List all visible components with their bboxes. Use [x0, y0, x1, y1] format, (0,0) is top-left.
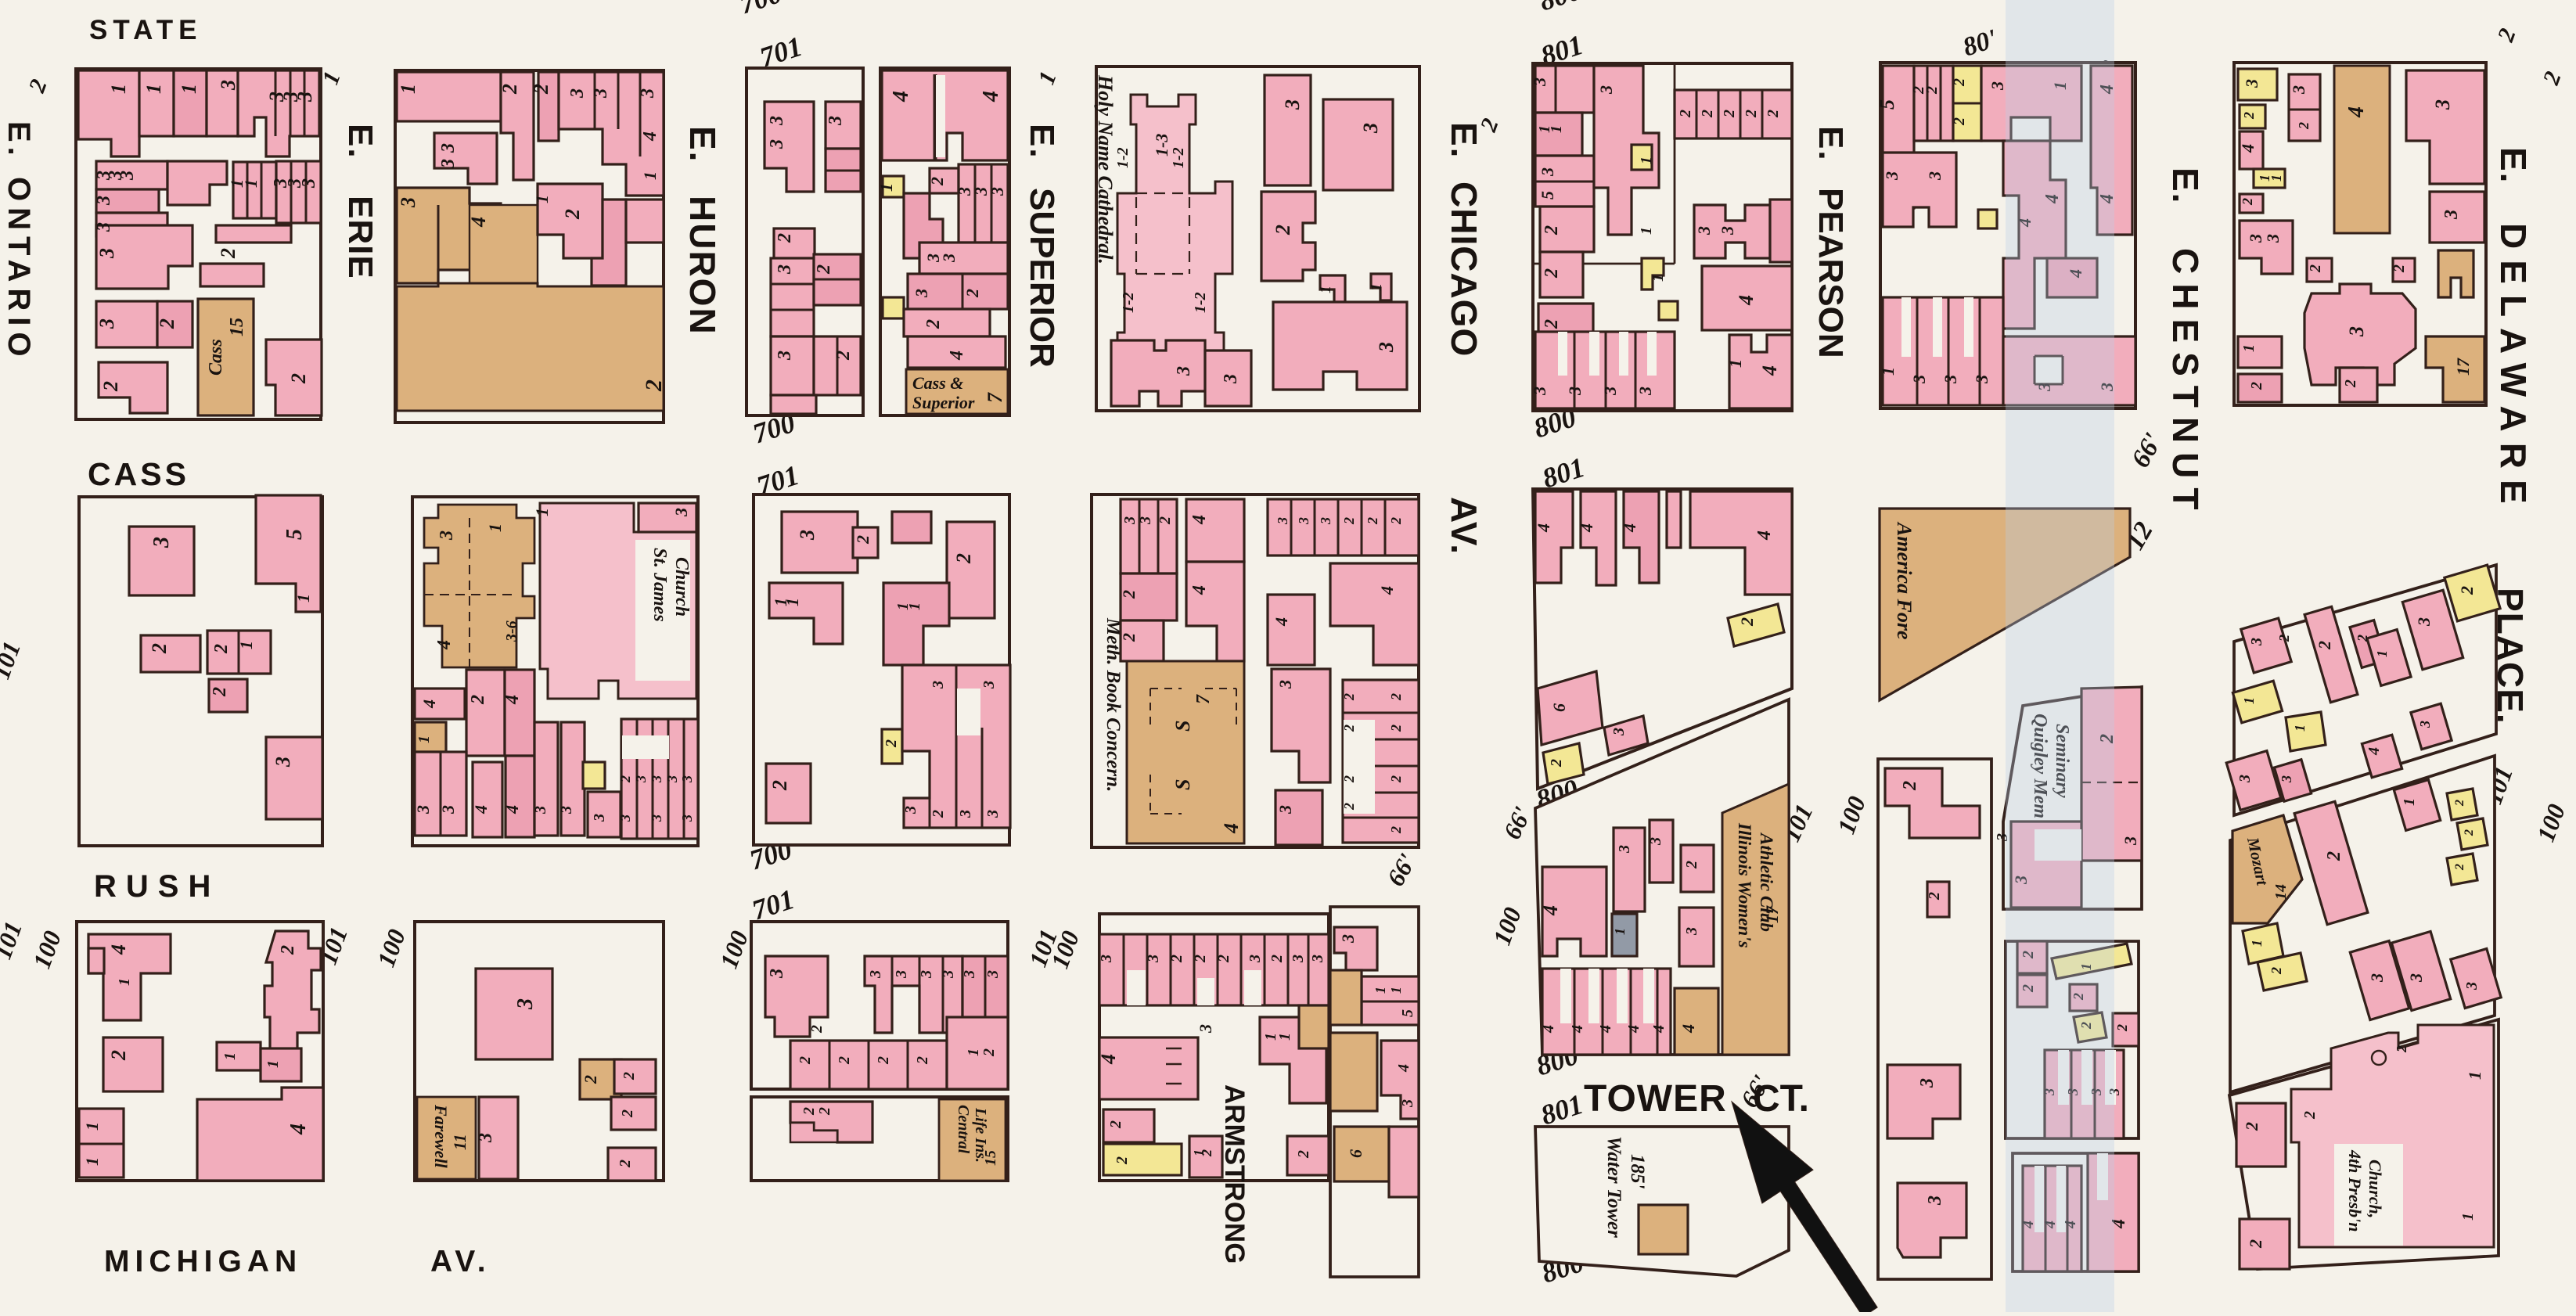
- svg-text:3: 3: [1538, 167, 1557, 177]
- svg-text:4: 4: [1220, 823, 1243, 834]
- svg-text:3: 3: [649, 775, 664, 783]
- svg-text:4: 4: [1758, 365, 1781, 376]
- svg-text:3: 3: [2463, 982, 2481, 991]
- svg-text:2: 2: [1388, 517, 1404, 525]
- svg-text:St. James: St. James: [649, 548, 670, 622]
- svg-text:3: 3: [2242, 79, 2261, 88]
- svg-text:Superior: Superior: [912, 393, 975, 412]
- svg-text:3: 3: [1359, 123, 1382, 134]
- svg-text:ONTARIO: ONTARIO: [2, 177, 36, 362]
- svg-text:2: 2: [775, 233, 795, 243]
- svg-text:2: 2: [1388, 725, 1404, 732]
- svg-text:3: 3: [1972, 375, 1991, 384]
- svg-text:2: 2: [1365, 517, 1380, 525]
- svg-text:2: 2: [2391, 264, 2408, 273]
- svg-text:2: 2: [99, 381, 122, 392]
- svg-text:4: 4: [1650, 1025, 1668, 1034]
- svg-text:5: 5: [1876, 99, 1898, 110]
- svg-text:2: 2: [2240, 198, 2255, 206]
- svg-text:4: 4: [1377, 586, 1397, 595]
- svg-text:1: 1: [1317, 286, 1334, 293]
- svg-text:1: 1: [221, 1052, 239, 1060]
- svg-text:4: 4: [1540, 1025, 1557, 1034]
- svg-text:2: 2: [2246, 1239, 2265, 1249]
- svg-text:4: 4: [889, 91, 913, 102]
- svg-text:5: 5: [282, 529, 307, 540]
- svg-text:1: 1: [532, 508, 552, 516]
- svg-text:7: 7: [984, 392, 1006, 403]
- svg-text:1: 1: [1276, 1033, 1293, 1041]
- svg-text:2: 2: [621, 1072, 638, 1080]
- svg-text:SUPERIOR: SUPERIOR: [1023, 188, 1061, 368]
- svg-text:3: 3: [767, 139, 787, 149]
- svg-text:3: 3: [1296, 517, 1311, 525]
- svg-text:2: 2: [2301, 1111, 2319, 1120]
- svg-text:3: 3: [1196, 1024, 1215, 1034]
- svg-text:3: 3: [930, 681, 947, 689]
- svg-text:1-3: 1-3: [1152, 134, 1171, 156]
- svg-text:3: 3: [912, 289, 931, 298]
- svg-text:3: 3: [796, 530, 818, 541]
- svg-text:3: 3: [1616, 845, 1633, 854]
- svg-text:2: 2: [1168, 955, 1185, 963]
- svg-text:2: 2: [581, 1075, 600, 1084]
- svg-text:4: 4: [1577, 523, 1596, 533]
- svg-text:2: 2: [468, 695, 488, 705]
- svg-text:3: 3: [1275, 805, 1295, 814]
- svg-text:3: 3: [1275, 517, 1290, 525]
- svg-text:ERIE: ERIE: [341, 196, 380, 279]
- svg-text:1: 1: [82, 1122, 102, 1131]
- svg-text:Central: Central: [955, 1105, 972, 1154]
- svg-text:3: 3: [1530, 387, 1549, 396]
- svg-text:2: 2: [1341, 775, 1357, 783]
- svg-text:2: 2: [1199, 1149, 1214, 1157]
- svg-text:3: 3: [2431, 99, 2454, 110]
- svg-text:2: 2: [1114, 1156, 1131, 1165]
- svg-text:3: 3: [1988, 81, 2007, 91]
- svg-text:2: 2: [980, 1048, 998, 1057]
- svg-text:2: 2: [814, 264, 834, 275]
- svg-text:3: 3: [397, 197, 419, 208]
- svg-text:4: 4: [107, 944, 130, 955]
- svg-text:E.: E.: [2165, 167, 2206, 204]
- svg-text:17: 17: [1762, 905, 1782, 923]
- svg-text:15: 15: [982, 1150, 999, 1166]
- svg-text:2: 2: [1157, 516, 1174, 525]
- svg-text:3: 3: [1925, 171, 1945, 181]
- svg-text:3: 3: [1174, 366, 1194, 376]
- svg-text:3: 3: [2263, 234, 2283, 243]
- svg-text:5: 5: [1538, 191, 1557, 200]
- svg-text:1: 1: [1638, 227, 1655, 235]
- svg-text:1: 1: [2459, 1213, 2477, 1221]
- svg-text:2: 2: [833, 351, 854, 361]
- svg-text:2: 2: [2463, 829, 2476, 836]
- svg-text:2: 2: [1677, 110, 1694, 118]
- svg-text:2: 2: [617, 1160, 634, 1168]
- svg-text:3: 3: [2289, 85, 2308, 95]
- svg-text:2: 2: [1341, 517, 1357, 525]
- svg-text:3: 3: [1137, 516, 1154, 525]
- svg-text:2: 2: [148, 643, 171, 654]
- svg-text:3: 3: [939, 253, 959, 263]
- svg-text:2: 2: [1295, 1150, 1312, 1159]
- svg-text:3: 3: [893, 970, 910, 979]
- svg-text:1: 1: [264, 1060, 282, 1068]
- svg-text:3: 3: [1098, 955, 1115, 963]
- svg-text:7: 7: [1193, 694, 1214, 704]
- svg-text:2: 2: [1388, 826, 1404, 834]
- svg-text:1: 1: [2249, 940, 2265, 947]
- svg-text:MICHIGAN: MICHIGAN: [104, 1245, 302, 1278]
- svg-text:4: 4: [1597, 1025, 1614, 1034]
- svg-text:2: 2: [2296, 122, 2312, 130]
- svg-text:2: 2: [923, 319, 944, 329]
- svg-text:3: 3: [117, 171, 138, 181]
- svg-text:3: 3: [94, 222, 114, 232]
- svg-text:1: 1: [876, 183, 896, 192]
- svg-text:1: 1: [82, 1157, 102, 1166]
- svg-text:1: 1: [107, 84, 130, 94]
- svg-text:2: 2: [1765, 110, 1782, 118]
- svg-text:4: 4: [1395, 1064, 1412, 1073]
- svg-text:E.: E.: [2, 121, 36, 160]
- svg-text:2: 2: [930, 810, 947, 818]
- svg-text:3: 3: [679, 814, 695, 822]
- svg-text:2: 2: [2268, 967, 2284, 975]
- svg-text:3: 3: [1565, 387, 1585, 396]
- svg-text:Farewell: Farewell: [431, 1104, 451, 1169]
- svg-text:3: 3: [902, 806, 919, 814]
- svg-text:1: 1: [2401, 798, 2418, 806]
- svg-text:S: S: [1171, 721, 1194, 732]
- svg-text:1: 1: [1638, 156, 1655, 164]
- svg-text:4: 4: [979, 91, 1003, 102]
- svg-text:1: 1: [2268, 174, 2284, 182]
- svg-text:4: 4: [1189, 585, 1210, 595]
- svg-text:2: 2: [768, 780, 791, 791]
- svg-text:3: 3: [1338, 934, 1358, 944]
- svg-text:3: 3: [438, 805, 458, 814]
- svg-text:3: 3: [826, 116, 846, 126]
- svg-text:2: 2: [853, 535, 872, 545]
- svg-text:6: 6: [1346, 1149, 1365, 1158]
- svg-text:America Fore: America Fore: [1893, 521, 1916, 640]
- svg-text:3: 3: [1309, 955, 1326, 963]
- svg-text:2: 2: [1548, 759, 1565, 768]
- svg-text:AV.: AV.: [1444, 497, 1484, 556]
- svg-text:4: 4: [2238, 144, 2258, 153]
- svg-text:1: 1: [142, 84, 165, 94]
- svg-text:Illinois Women's: Illinois Women's: [1735, 822, 1754, 948]
- svg-text:3: 3: [293, 92, 316, 102]
- svg-text:4: 4: [2366, 747, 2383, 756]
- svg-text:3: 3: [2236, 775, 2254, 783]
- svg-text:3: 3: [532, 806, 549, 814]
- svg-text:2: 2: [1388, 693, 1404, 701]
- svg-text:14: 14: [2272, 884, 2290, 900]
- svg-text:1: 1: [1388, 987, 1404, 994]
- svg-text:3: 3: [633, 775, 649, 783]
- svg-text:3: 3: [95, 248, 118, 259]
- svg-text:2: 2: [1341, 803, 1357, 811]
- svg-text:2: 2: [883, 739, 900, 748]
- svg-text:2: 2: [1542, 225, 1562, 236]
- svg-text:2: 2: [962, 289, 982, 298]
- svg-text:4: 4: [1539, 905, 1562, 916]
- svg-text:3: 3: [980, 681, 998, 689]
- svg-text:1: 1: [236, 641, 256, 649]
- svg-text:2: 2: [156, 318, 178, 329]
- svg-text:2: 2: [2307, 264, 2324, 273]
- svg-text:1: 1: [178, 84, 200, 94]
- svg-text:3: 3: [1694, 226, 1714, 236]
- svg-text:3: 3: [567, 88, 588, 99]
- svg-text:3: 3: [767, 116, 787, 126]
- svg-text:2: 2: [107, 1050, 130, 1061]
- svg-text:2: 2: [1683, 861, 1700, 869]
- svg-text:3: 3: [2441, 210, 2462, 220]
- svg-text:2: 2: [1699, 110, 1716, 118]
- svg-text:3: 3: [2248, 638, 2265, 646]
- svg-text:Church: Church: [671, 557, 692, 617]
- svg-text:4: 4: [1735, 295, 1758, 306]
- svg-text:1: 1: [2292, 725, 2308, 732]
- svg-text:4: 4: [1620, 523, 1639, 533]
- svg-text:1: 1: [397, 84, 419, 94]
- svg-text:3: 3: [1647, 837, 1664, 846]
- svg-text:2: 2: [2241, 112, 2257, 120]
- svg-text:3: 3: [961, 970, 978, 979]
- svg-text:2: 2: [1923, 86, 1941, 95]
- svg-text:1-2: 1-2: [1192, 292, 1209, 313]
- svg-text:3-6: 3-6: [503, 620, 520, 642]
- svg-text:1: 1: [1373, 987, 1388, 994]
- svg-text:E.: E.: [2493, 147, 2534, 184]
- svg-text:STATE: STATE: [89, 15, 203, 45]
- svg-text:3: 3: [957, 810, 974, 818]
- svg-text:2: 2: [278, 945, 298, 955]
- svg-text:2: 2: [1926, 892, 1943, 901]
- svg-text:3: 3: [1600, 387, 1620, 396]
- svg-text:3: 3: [679, 775, 695, 783]
- svg-text:1: 1: [1878, 367, 1898, 376]
- svg-text:2: 2: [1542, 319, 1562, 329]
- svg-text:TOWER: TOWER: [1584, 1078, 1727, 1120]
- svg-text:1: 1: [2374, 650, 2390, 657]
- svg-text:CASS: CASS: [88, 456, 189, 492]
- svg-text:2: 2: [816, 1107, 833, 1116]
- svg-text:2: 2: [808, 1025, 826, 1034]
- svg-text:3: 3: [299, 178, 319, 189]
- svg-text:3: 3: [413, 805, 433, 814]
- svg-text:3: 3: [1718, 226, 1737, 236]
- svg-text:3: 3: [1683, 927, 1700, 936]
- svg-text:2: 2: [2315, 641, 2334, 650]
- svg-text:2: 2: [1215, 955, 1232, 963]
- svg-text:2: 2: [875, 1056, 892, 1065]
- svg-text:1: 1: [783, 598, 802, 606]
- svg-text:3: 3: [638, 88, 658, 99]
- svg-text:2: 2: [2324, 851, 2344, 861]
- svg-text:4: 4: [947, 351, 967, 361]
- svg-text:4: 4: [1754, 530, 1775, 541]
- svg-text:E.: E.: [341, 124, 380, 160]
- svg-text:2: 2: [619, 1109, 636, 1118]
- svg-text:4: 4: [1569, 1025, 1586, 1034]
- svg-text:1: 1: [293, 594, 313, 602]
- svg-text:E.: E.: [1023, 124, 1061, 160]
- svg-text:2: 2: [1272, 225, 1294, 236]
- svg-text:3: 3: [1635, 387, 1655, 396]
- svg-text:1: 1: [640, 171, 660, 180]
- svg-text:4: 4: [1678, 1024, 1698, 1034]
- svg-text:3: 3: [438, 159, 459, 169]
- svg-text:E.: E.: [1811, 126, 1850, 162]
- svg-text:HURON: HURON: [682, 196, 723, 336]
- svg-text:3: 3: [1221, 374, 1241, 384]
- svg-text:2: 2: [1737, 617, 1757, 627]
- svg-text:3: 3: [558, 806, 575, 814]
- svg-text:3: 3: [1917, 1078, 1937, 1088]
- svg-text:4: 4: [640, 131, 660, 142]
- svg-text:3: 3: [775, 264, 795, 275]
- svg-text:2: 2: [1192, 955, 1209, 963]
- svg-text:3: 3: [1247, 955, 1264, 963]
- svg-text:2: 2: [927, 177, 947, 186]
- svg-text:15: 15: [227, 318, 247, 336]
- svg-text:2: 2: [914, 1056, 931, 1065]
- svg-text:3: 3: [217, 80, 239, 91]
- svg-text:3: 3: [940, 970, 957, 979]
- svg-text:3: 3: [1941, 375, 1960, 384]
- svg-text:3: 3: [984, 810, 1002, 818]
- svg-text:2: 2: [1119, 633, 1139, 642]
- svg-text:3: 3: [1290, 955, 1307, 963]
- svg-text:2: 2: [561, 209, 584, 220]
- svg-text:2: 2: [641, 379, 667, 392]
- svg-text:3: 3: [149, 537, 174, 548]
- svg-text:1: 1: [1368, 283, 1385, 291]
- svg-text:2: 2: [1900, 781, 1920, 791]
- svg-text:6: 6: [1549, 703, 1569, 712]
- svg-text:4: 4: [434, 640, 455, 650]
- svg-text:3: 3: [1145, 955, 1162, 963]
- svg-text:2: 2: [1119, 590, 1139, 599]
- svg-text:2: 2: [2457, 586, 2477, 595]
- svg-text:2: 2: [1341, 693, 1357, 701]
- svg-text:2: 2: [1743, 110, 1760, 118]
- svg-text:4: 4: [471, 805, 491, 814]
- svg-text:3: 3: [1530, 77, 1549, 87]
- svg-text:S: S: [1171, 779, 1194, 790]
- svg-text:3: 3: [2414, 617, 2434, 627]
- svg-text:11: 11: [450, 1134, 470, 1150]
- svg-text:3: 3: [918, 970, 935, 979]
- svg-text:5: 5: [1399, 1009, 1416, 1017]
- svg-text:3: 3: [513, 998, 538, 1010]
- svg-text:2: 2: [2355, 635, 2370, 642]
- svg-text:PEARSON: PEARSON: [1811, 188, 1850, 358]
- svg-text:3: 3: [272, 757, 294, 768]
- svg-text:Cass: Cass: [206, 339, 226, 376]
- svg-text:2: 2: [2242, 1122, 2261, 1131]
- svg-text:3: 3: [1909, 375, 1929, 384]
- svg-text:2: 2: [1268, 955, 1286, 963]
- svg-text:2: 2: [2453, 864, 2466, 871]
- svg-text:1: 1: [532, 195, 552, 203]
- svg-text:4: 4: [419, 699, 439, 709]
- svg-text:4: 4: [1189, 515, 1210, 525]
- svg-text:3: 3: [1281, 99, 1304, 110]
- svg-text:3: 3: [2367, 973, 2387, 983]
- svg-text:2: 2: [797, 1056, 814, 1065]
- svg-text:2: 2: [1951, 117, 1968, 126]
- svg-text:2: 2: [836, 1056, 853, 1065]
- svg-text:2: 2: [952, 553, 975, 564]
- svg-text:1-2: 1-2: [1120, 292, 1137, 313]
- svg-text:3: 3: [664, 775, 680, 783]
- svg-text:1-2: 1-2: [1114, 147, 1131, 168]
- svg-text:1: 1: [1548, 125, 1565, 133]
- svg-text:1: 1: [2465, 1071, 2484, 1080]
- svg-text:2: 2: [1107, 1120, 1124, 1129]
- svg-text:1: 1: [2240, 344, 2258, 352]
- svg-text:3: 3: [1399, 1099, 1416, 1108]
- svg-text:3: 3: [1610, 728, 1628, 736]
- svg-text:3: 3: [1375, 342, 1398, 353]
- svg-text:4: 4: [1097, 1054, 1120, 1065]
- svg-text:4: 4: [467, 217, 490, 228]
- svg-text:RUSH: RUSH: [94, 869, 220, 904]
- svg-text:Holy Name Cathedral.: Holy Name Cathedral.: [1094, 74, 1117, 264]
- svg-text:3: 3: [2121, 836, 2140, 846]
- svg-text:3: 3: [775, 351, 795, 361]
- svg-text:Water Tower: Water Tower: [1603, 1136, 1624, 1238]
- svg-text:2: 2: [1951, 78, 1968, 87]
- svg-text:3: 3: [984, 970, 1002, 979]
- svg-text:3: 3: [2279, 775, 2294, 783]
- svg-text:17: 17: [2453, 358, 2473, 376]
- svg-text:1: 1: [965, 1048, 982, 1056]
- svg-text:3: 3: [649, 814, 664, 822]
- svg-text:E.: E.: [682, 126, 723, 163]
- svg-text:Cass &: Cass &: [912, 373, 963, 393]
- svg-text:3: 3: [2345, 326, 2368, 337]
- svg-text:2: 2: [801, 1107, 818, 1116]
- svg-text:3: 3: [867, 970, 884, 979]
- svg-text:2: 2: [210, 687, 230, 697]
- svg-text:4th Presb'n: 4th Presb'n: [2345, 1149, 2365, 1232]
- svg-text:4: 4: [1625, 1025, 1642, 1034]
- svg-text:2: 2: [1721, 110, 1738, 118]
- svg-text:3: 3: [988, 187, 1007, 196]
- svg-text:2: 2: [1388, 775, 1404, 783]
- svg-text:4: 4: [502, 805, 522, 814]
- svg-text:3: 3: [591, 88, 611, 99]
- svg-text:CHESTNUT: CHESTNUT: [2165, 248, 2206, 519]
- svg-text:4: 4: [502, 695, 523, 705]
- svg-text:2: 2: [2114, 1024, 2130, 1032]
- svg-text:4: 4: [286, 1124, 311, 1135]
- svg-text:2: 2: [217, 248, 239, 259]
- svg-text:3: 3: [671, 508, 691, 517]
- svg-text:ARMSTRONG: ARMSTRONG: [1219, 1084, 1250, 1264]
- svg-text:3: 3: [1121, 516, 1139, 525]
- svg-text:DELAWARE: DELAWARE: [2493, 223, 2534, 515]
- svg-text:2: 2: [2453, 800, 2466, 807]
